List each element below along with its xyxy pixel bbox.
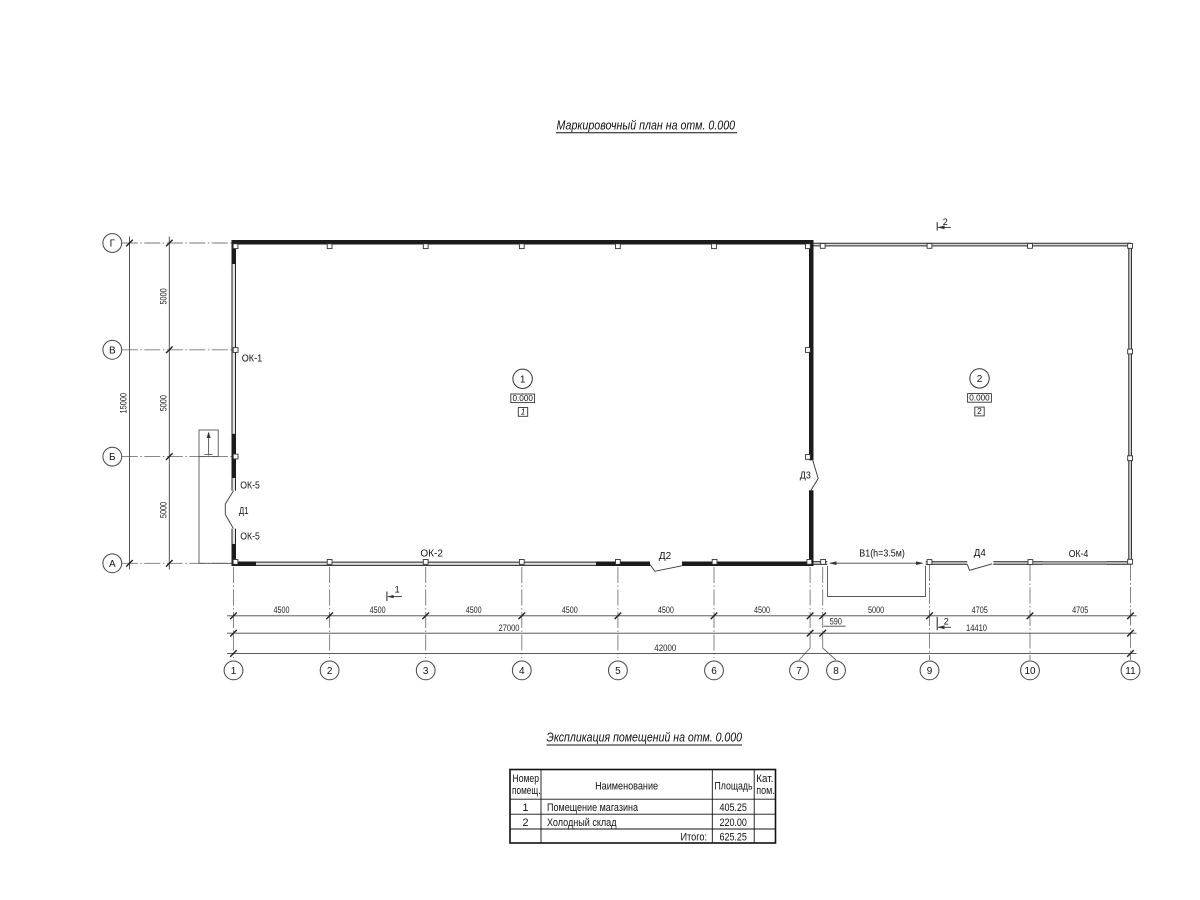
svg-text:0.000: 0.000 xyxy=(969,392,990,402)
svg-text:1: 1 xyxy=(395,585,400,595)
svg-text:625.25: 625.25 xyxy=(719,831,747,843)
svg-text:2: 2 xyxy=(327,666,333,677)
svg-text:Холодный склад: Холодный склад xyxy=(547,817,617,829)
svg-text:4500: 4500 xyxy=(466,605,482,615)
svg-text:Маркировочный план на отм. 0.: Маркировочный план на отм. 0.000 xyxy=(557,118,736,133)
svg-text:8: 8 xyxy=(833,666,839,677)
svg-text:ОК-4: ОК-4 xyxy=(1069,548,1089,560)
svg-text:4500: 4500 xyxy=(754,605,770,615)
svg-text:Экспликация помещений на отм.: Экспликация помещений на отм. 0.000 xyxy=(547,730,743,745)
svg-text:1: 1 xyxy=(231,666,237,677)
svg-text:Д3: Д3 xyxy=(800,470,811,482)
svg-text:2: 2 xyxy=(977,374,983,385)
svg-text:Б: Б xyxy=(109,452,116,463)
svg-text:Итого:: Итого: xyxy=(681,831,708,843)
svg-text:1: 1 xyxy=(520,375,526,386)
svg-text:4500: 4500 xyxy=(562,605,578,615)
svg-text:Помещение магазина: Помещение магазина xyxy=(547,802,638,814)
svg-text:4705: 4705 xyxy=(972,605,988,615)
svg-text:Д4: Д4 xyxy=(974,547,986,559)
svg-text:4: 4 xyxy=(519,666,525,677)
svg-text:4705: 4705 xyxy=(1072,605,1088,615)
svg-text:405.25: 405.25 xyxy=(719,802,747,814)
svg-text:0.000: 0.000 xyxy=(512,393,533,403)
svg-text:пом.: пом. xyxy=(756,785,775,797)
svg-text:помещ.: помещ. xyxy=(512,785,541,797)
svg-text:9: 9 xyxy=(927,666,933,677)
svg-text:Номер: Номер xyxy=(513,773,540,785)
svg-text:5000: 5000 xyxy=(158,502,168,518)
svg-text:1: 1 xyxy=(521,407,526,417)
svg-text:ОК-1: ОК-1 xyxy=(242,353,263,365)
svg-text:Кат.: Кат. xyxy=(756,773,773,785)
svg-text:2: 2 xyxy=(522,817,528,829)
svg-text:1: 1 xyxy=(522,802,528,814)
svg-text:Площадь: Площадь xyxy=(715,780,753,792)
svg-text:А: А xyxy=(109,559,116,570)
svg-text:27000: 27000 xyxy=(499,623,520,633)
svg-text:2: 2 xyxy=(944,616,949,626)
svg-text:ОК-2: ОК-2 xyxy=(420,548,443,560)
svg-text:Д1: Д1 xyxy=(239,505,249,517)
svg-text:6: 6 xyxy=(711,666,717,677)
svg-text:4500: 4500 xyxy=(658,605,674,615)
svg-text:42000: 42000 xyxy=(654,643,676,653)
svg-text:5: 5 xyxy=(615,666,621,677)
svg-text:В: В xyxy=(109,345,116,356)
svg-text:5000: 5000 xyxy=(158,395,168,411)
svg-text:Д2: Д2 xyxy=(659,550,672,562)
svg-text:2: 2 xyxy=(943,217,948,227)
svg-text:15000: 15000 xyxy=(119,393,129,414)
svg-text:В1(h=3.5м): В1(h=3.5м) xyxy=(859,547,905,559)
svg-text:220.00: 220.00 xyxy=(719,817,747,829)
svg-text:Наименование: Наименование xyxy=(595,780,658,792)
svg-text:2: 2 xyxy=(977,406,982,416)
svg-text:7: 7 xyxy=(796,666,802,677)
svg-text:5000: 5000 xyxy=(158,288,168,304)
svg-text:590: 590 xyxy=(830,616,842,626)
svg-text:4500: 4500 xyxy=(370,605,386,615)
svg-text:4500: 4500 xyxy=(274,605,290,615)
svg-text:ОК-5: ОК-5 xyxy=(240,479,260,491)
svg-text:3: 3 xyxy=(423,666,429,677)
svg-text:14410: 14410 xyxy=(966,623,987,633)
svg-text:10: 10 xyxy=(1024,666,1036,677)
svg-text:5000: 5000 xyxy=(868,605,884,615)
svg-text:ОК-5: ОК-5 xyxy=(240,530,260,542)
svg-text:Г: Г xyxy=(110,239,116,250)
svg-text:11: 11 xyxy=(1125,666,1136,677)
